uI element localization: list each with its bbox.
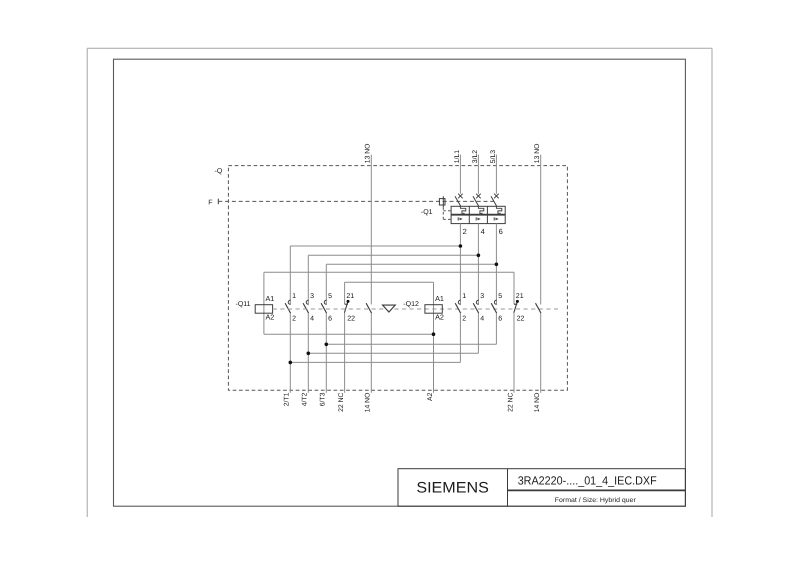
svg-text:1: 1 [292, 293, 296, 300]
svg-text:2: 2 [462, 315, 466, 322]
svg-text:1/L1: 1/L1 [454, 150, 461, 163]
svg-text:-Q: -Q [215, 168, 223, 175]
svg-text:6/T3: 6/T3 [320, 392, 327, 406]
svg-text:Format / Size: Hybrid quer: Format / Size: Hybrid quer [555, 497, 637, 504]
svg-text:22 NC: 22 NC [507, 393, 514, 412]
svg-text:A2: A2 [435, 313, 444, 322]
svg-text:21: 21 [346, 293, 354, 300]
svg-text:4/T2: 4/T2 [302, 392, 309, 406]
svg-text:2/T1: 2/T1 [284, 392, 291, 406]
svg-text:14 NO: 14 NO [534, 393, 541, 413]
svg-text:5: 5 [498, 293, 502, 300]
svg-text:2: 2 [463, 227, 467, 236]
svg-text:A2: A2 [266, 313, 275, 322]
svg-text:A2: A2 [427, 392, 434, 401]
svg-text:22: 22 [347, 315, 355, 322]
svg-text:F: F [208, 200, 212, 207]
svg-text:22: 22 [517, 315, 525, 322]
svg-text:4: 4 [480, 315, 484, 322]
svg-text:2: 2 [292, 315, 296, 322]
svg-text:A1: A1 [266, 294, 275, 303]
svg-text:3/L2: 3/L2 [472, 150, 479, 163]
svg-text:22 NC: 22 NC [338, 393, 345, 412]
svg-text:6: 6 [328, 315, 332, 322]
svg-text:6: 6 [498, 315, 502, 322]
svg-text:SIEMENS: SIEMENS [416, 480, 489, 497]
svg-text:21: 21 [516, 293, 524, 300]
svg-text:3: 3 [480, 293, 484, 300]
svg-text:3RA2220-...._01_4_IEC.DXF: 3RA2220-...._01_4_IEC.DXF [518, 474, 657, 488]
svg-text:14 NO: 14 NO [365, 393, 372, 413]
svg-text:4: 4 [310, 315, 314, 322]
svg-text:6: 6 [499, 227, 503, 236]
svg-text:13 NO: 13 NO [534, 144, 541, 164]
svg-text:-Q12: -Q12 [403, 301, 419, 308]
svg-text:5: 5 [328, 293, 332, 300]
svg-text:5/L3: 5/L3 [490, 150, 497, 163]
svg-text:13 NO: 13 NO [365, 144, 372, 164]
svg-text:-Q1: -Q1 [421, 209, 433, 216]
svg-text:A1: A1 [435, 294, 444, 303]
svg-text:3: 3 [310, 293, 314, 300]
svg-text:1: 1 [462, 293, 466, 300]
svg-text:-Q11: -Q11 [236, 301, 251, 308]
svg-text:4: 4 [481, 227, 485, 236]
